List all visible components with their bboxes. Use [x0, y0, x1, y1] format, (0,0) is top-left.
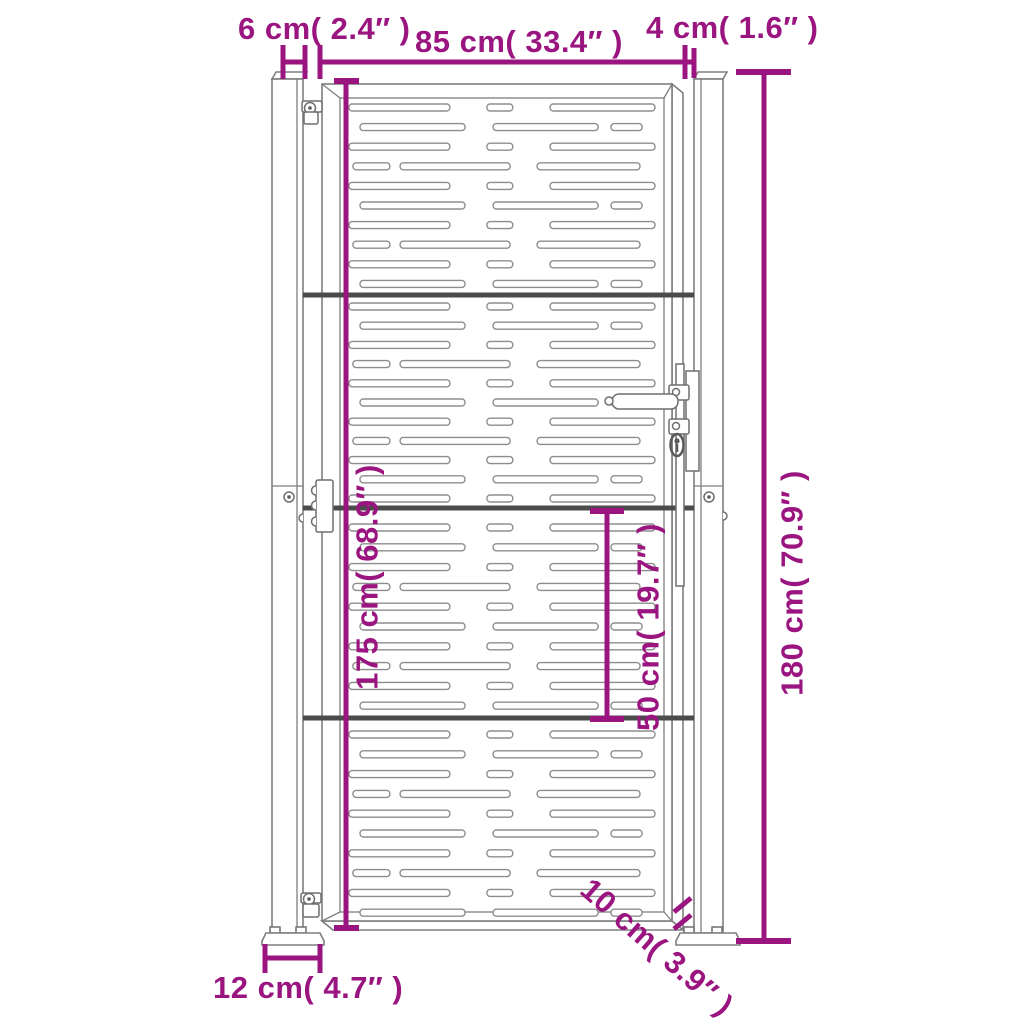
gate-slot [349, 182, 450, 189]
gate-slot [400, 241, 510, 248]
right-post-bolt-center [707, 495, 711, 499]
gate-slot [493, 623, 598, 630]
right-post-top-face [694, 72, 727, 79]
gate-slot [349, 457, 450, 464]
gate-slot [550, 104, 655, 111]
gate-slot [550, 771, 655, 778]
gate-slot [611, 124, 642, 131]
gate-slot [400, 163, 510, 170]
gate-slot [611, 476, 642, 483]
label-gap-width: 4 cm( 1.6″ ) [646, 12, 818, 43]
gate-slot [493, 202, 598, 209]
left-foot-tab [296, 927, 306, 933]
label-gate-width: 85 cm( 33.4″ ) [415, 26, 623, 57]
right-post [694, 72, 727, 933]
gate-slot [493, 702, 598, 709]
gate-slot [349, 341, 450, 348]
gate-slot [487, 418, 513, 425]
gate-slot [353, 241, 390, 248]
gate-slot [400, 870, 510, 877]
gate-slot [493, 751, 598, 758]
gate-slot [537, 663, 640, 670]
label-post-width: 6 cm( 2.4″ ) [238, 13, 410, 44]
gate-slot [487, 495, 513, 502]
gate-dimension-diagram: 6 cm( 2.4″ ) 85 cm( 33.4″ ) 4 cm( 1.6″ )… [0, 0, 1024, 1024]
gate-slot [360, 280, 465, 287]
gate-slot [487, 643, 513, 650]
gate-slot [349, 143, 450, 150]
gate-slot [550, 810, 655, 817]
gate-slot [550, 380, 655, 387]
gate-slot [487, 261, 513, 268]
gate-slot [360, 909, 465, 916]
gate-slot [537, 790, 640, 797]
gate-slot [487, 810, 513, 817]
gate-slot [550, 341, 655, 348]
right-post-body [694, 79, 723, 933]
gate-slot [493, 830, 598, 837]
gate-slot [487, 303, 513, 310]
gate-slot [537, 361, 640, 368]
gate-slot [550, 850, 655, 857]
gate-slot [360, 751, 465, 758]
gate-slot [550, 182, 655, 189]
gate-slot [487, 889, 513, 896]
gate-slot [550, 222, 655, 229]
gate-slot [487, 380, 513, 387]
gate-slot [487, 564, 513, 571]
gate-slot [349, 303, 450, 310]
gate-slot [360, 124, 465, 131]
gate-slot [537, 241, 640, 248]
handle-end-cap [605, 397, 613, 405]
gate-slot [493, 544, 598, 551]
gate-slot [537, 437, 640, 444]
gate-slot [611, 751, 642, 758]
gate-slot [349, 418, 450, 425]
gate-slot [353, 790, 390, 797]
gate-slot [400, 663, 510, 670]
left-base-plate [262, 933, 324, 945]
left-post [272, 72, 307, 933]
left-foot-tab [270, 927, 280, 933]
gate-slot [611, 280, 642, 287]
gate-slot [611, 322, 642, 329]
label-gate-height: 175 cm( 68.9″ ) [352, 464, 383, 690]
gate-slot [537, 583, 640, 590]
right-base-plate [676, 933, 740, 945]
bracket-screw [673, 423, 680, 430]
gate-slot [493, 476, 598, 483]
gate-slot [493, 124, 598, 131]
gate-slot [487, 143, 513, 150]
gate-line-drawing [0, 0, 1024, 1024]
gate-slot [493, 280, 598, 287]
gate-slot [349, 731, 450, 738]
gate-slot [353, 870, 390, 877]
gate-slot [550, 143, 655, 150]
gate-slot [360, 322, 465, 329]
gate-slot [353, 361, 390, 368]
gate-slot [611, 830, 642, 837]
gate-slot [400, 437, 510, 444]
gate-slot [400, 583, 510, 590]
label-panel-height: 50 cm( 19.7″ ) [633, 523, 664, 731]
handle-bar [612, 394, 678, 409]
label-base-plate-width: 12 cm( 4.7″ ) [213, 972, 403, 1003]
gate-slot [349, 222, 450, 229]
gate-slot [487, 524, 513, 531]
gate-slot [349, 850, 450, 857]
gate-slot [349, 771, 450, 778]
left-post-body [272, 79, 303, 933]
hinge-bottom [301, 893, 321, 917]
gate-slot [360, 399, 465, 406]
gate-slot [550, 457, 655, 464]
gate-slot [493, 909, 598, 916]
gate-slot [537, 870, 640, 877]
left-post-top-face [272, 72, 307, 79]
gate-slot [487, 850, 513, 857]
gate-slot [487, 731, 513, 738]
gate-slot [400, 361, 510, 368]
gate-slot [487, 603, 513, 610]
gate-slot [487, 182, 513, 189]
left-post-nub [299, 514, 303, 522]
gate-slot [353, 163, 390, 170]
label-total-height: 180 cm( 70.9″ ) [777, 470, 808, 696]
gate-slot [487, 222, 513, 229]
gate-slot [487, 341, 513, 348]
gate-slot [487, 457, 513, 464]
gate-slot [400, 790, 510, 797]
gate-slot [611, 202, 642, 209]
gate-slot [349, 889, 450, 896]
left-post-bolt-center [287, 495, 291, 499]
lock-cylinder-pin [674, 438, 679, 443]
gate-slot [550, 261, 655, 268]
gate-slot [349, 261, 450, 268]
gate-slot [550, 731, 655, 738]
right-post-nub [723, 512, 727, 520]
gate-slot [349, 104, 450, 111]
gate-slot [360, 202, 465, 209]
hinge-top [302, 101, 322, 124]
gate-slot [487, 771, 513, 778]
gate-slot [487, 104, 513, 111]
gate-slot [349, 810, 450, 817]
gate-slot [537, 163, 640, 170]
gate-slot [360, 702, 465, 709]
gate-slot [550, 495, 655, 502]
gate-slot [349, 380, 450, 387]
gate-slot [550, 303, 655, 310]
gate-slot [493, 399, 598, 406]
gate-slot [353, 437, 390, 444]
gate-slot [487, 682, 513, 689]
hinge-middle [312, 480, 334, 532]
right-foot-tab [684, 927, 694, 933]
gate-slot [493, 322, 598, 329]
gate-slot [550, 418, 655, 425]
gate-slot [360, 830, 465, 837]
right-foot-tab [712, 927, 722, 933]
